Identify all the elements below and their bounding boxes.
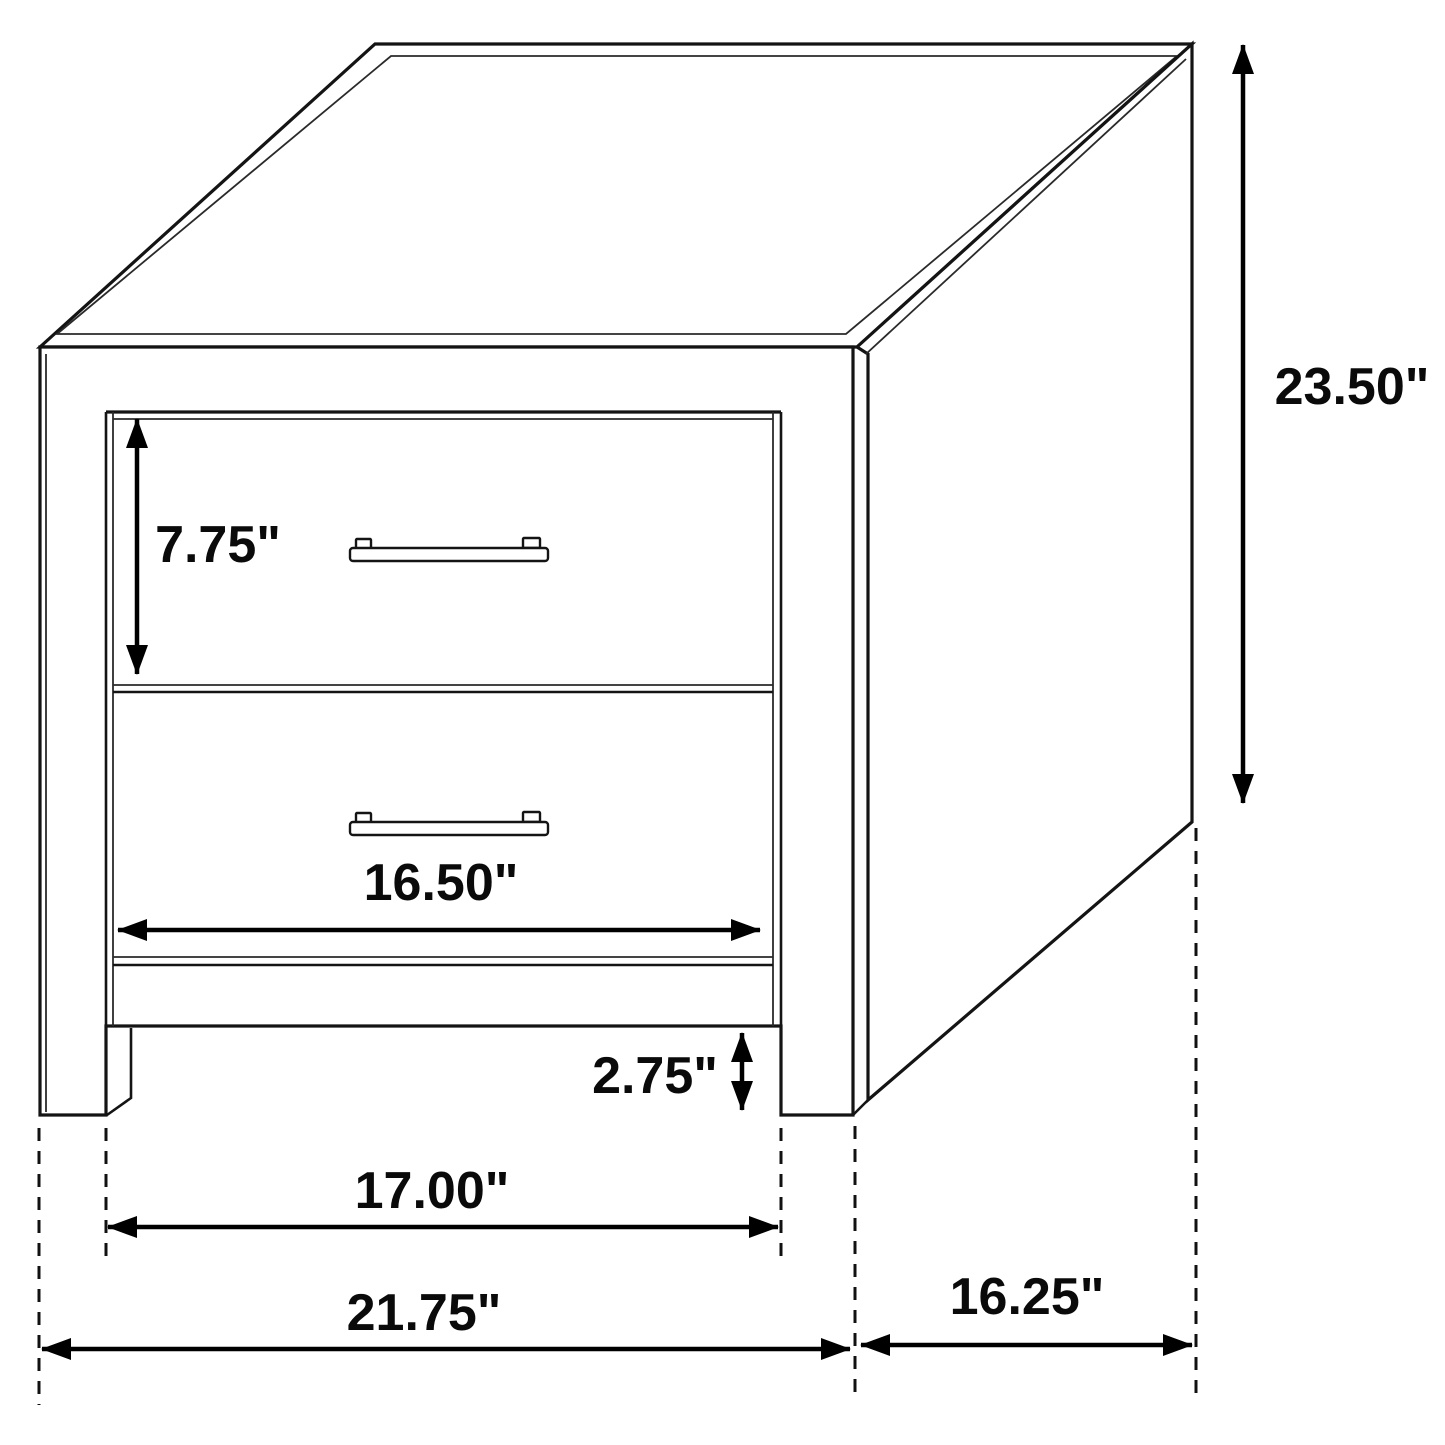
dimension-overall-height: 23.50"	[1243, 45, 1429, 803]
overall-height-label: 23.50"	[1275, 358, 1430, 416]
leg-clearance-label: 2.75"	[592, 1047, 718, 1105]
drawer-width-label: 16.50"	[364, 854, 519, 912]
dimension-diagram: 23.50" 7.75" 16.50" 2.75" 17.00" 21.75" …	[0, 0, 1445, 1445]
dimension-leg-span: 17.00"	[108, 1162, 778, 1227]
nightstand-outline	[40, 44, 1192, 1115]
dimension-side-depth: 16.25"	[861, 1268, 1192, 1345]
nightstand-dimension-drawing: 23.50" 7.75" 16.50" 2.75" 17.00" 21.75" …	[0, 0, 1445, 1445]
overall-width-label: 21.75"	[347, 1284, 502, 1342]
dimension-leg-clearance: 2.75"	[592, 1033, 742, 1110]
front-frame	[40, 347, 853, 1115]
drawer-front-height-label: 7.75"	[155, 516, 281, 574]
dimension-overall-width: 21.75"	[42, 1284, 850, 1349]
side-depth-label: 16.25"	[950, 1268, 1105, 1326]
leg-span-label: 17.00"	[355, 1162, 510, 1220]
left-leg-inner-face-edge	[107, 1028, 131, 1115]
right-leg-corner-bevel	[853, 1100, 868, 1115]
front-face	[40, 347, 868, 1115]
